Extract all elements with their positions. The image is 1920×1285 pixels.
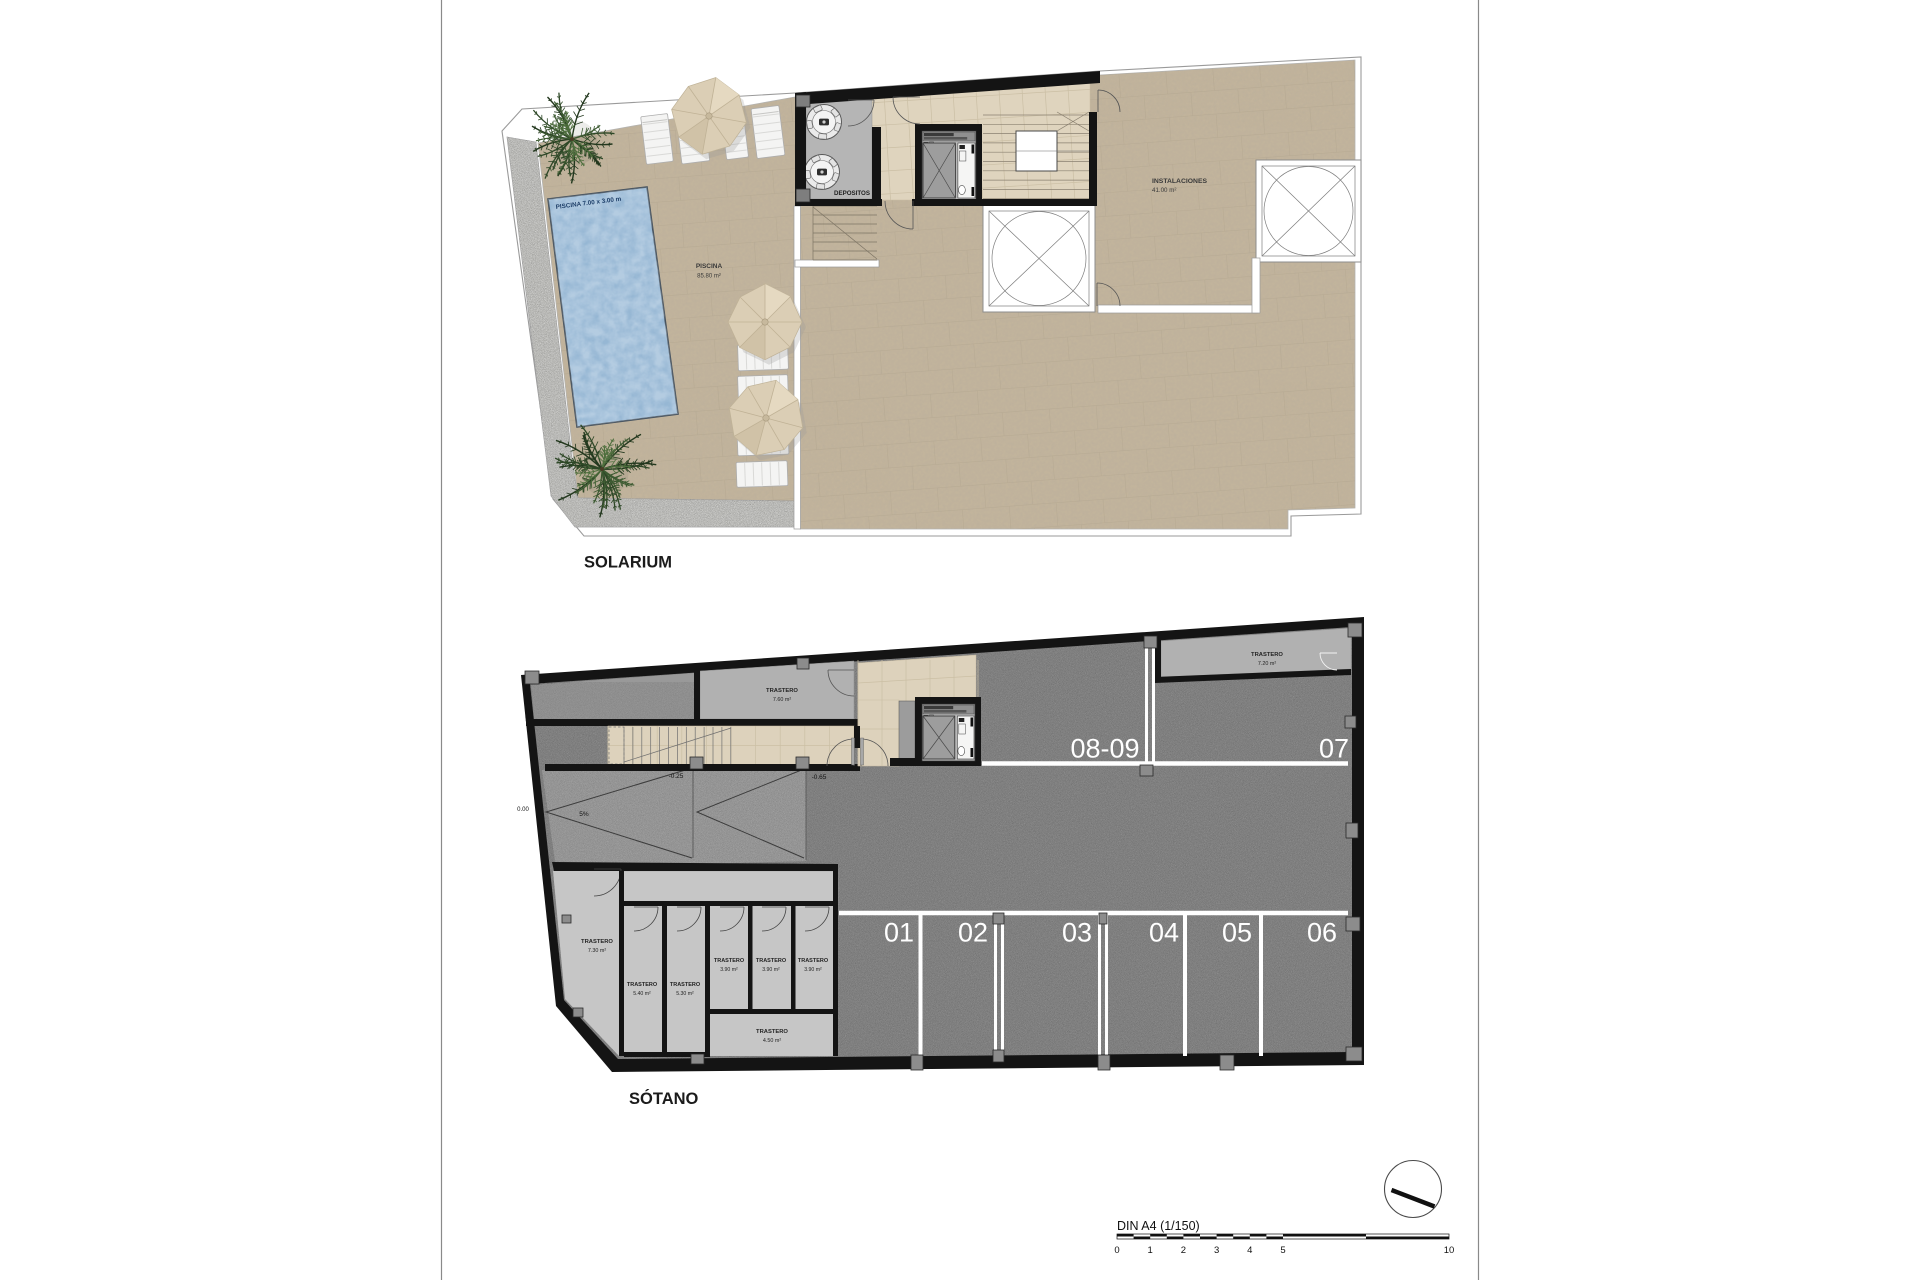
svg-text:TRASTERO: TRASTERO — [756, 1029, 788, 1035]
svg-text:5.40 m²: 5.40 m² — [633, 991, 651, 997]
svg-text:08-09: 08-09 — [1070, 734, 1139, 764]
svg-text:01: 01 — [884, 918, 914, 948]
svg-text:SOLARIUM: SOLARIUM — [584, 554, 672, 572]
svg-text:85.80 m²: 85.80 m² — [697, 274, 721, 280]
svg-text:PISCINA: PISCINA — [696, 263, 723, 270]
svg-text:06: 06 — [1307, 918, 1337, 948]
svg-text:TRASTERO: TRASTERO — [766, 688, 798, 694]
svg-text:7.30 m²: 7.30 m² — [588, 948, 606, 954]
svg-text:DEPOSITOS: DEPOSITOS — [834, 190, 870, 197]
svg-text:10: 10 — [1444, 1245, 1455, 1256]
svg-text:TRASTERO: TRASTERO — [627, 982, 658, 988]
svg-text:7.20 m²: 7.20 m² — [1258, 661, 1276, 667]
svg-text:INSTALACIONES: INSTALACIONES — [1152, 178, 1207, 185]
svg-text:-0.25: -0.25 — [669, 773, 684, 780]
svg-text:-0.65: -0.65 — [812, 774, 827, 781]
svg-text:41.00 m²: 41.00 m² — [1152, 187, 1176, 194]
svg-text:03: 03 — [1062, 918, 1092, 948]
svg-text:TRASTERO: TRASTERO — [798, 958, 829, 964]
svg-text:04: 04 — [1149, 918, 1179, 948]
svg-text:5%: 5% — [579, 811, 589, 818]
svg-text:TRASTERO: TRASTERO — [714, 958, 745, 964]
svg-text:3.90 m²: 3.90 m² — [804, 967, 822, 973]
svg-text:DIN A4 (1/150): DIN A4 (1/150) — [1117, 1219, 1200, 1233]
svg-text:TRASTERO: TRASTERO — [1251, 652, 1283, 658]
svg-text:3.90 m²: 3.90 m² — [762, 967, 780, 973]
svg-text:5: 5 — [1280, 1245, 1285, 1256]
svg-text:0.00: 0.00 — [517, 807, 529, 813]
svg-text:4: 4 — [1247, 1245, 1252, 1256]
svg-text:TRASTERO: TRASTERO — [670, 982, 701, 988]
svg-text:07: 07 — [1319, 734, 1349, 764]
svg-text:02: 02 — [958, 918, 988, 948]
svg-text:7.60 m²: 7.60 m² — [773, 697, 791, 703]
svg-text:3: 3 — [1214, 1245, 1219, 1256]
svg-text:0: 0 — [1114, 1245, 1119, 1256]
svg-text:05: 05 — [1222, 918, 1252, 948]
svg-text:1: 1 — [1148, 1245, 1153, 1256]
svg-text:5.30 m²: 5.30 m² — [676, 991, 694, 997]
svg-text:TRASTERO: TRASTERO — [756, 958, 787, 964]
svg-text:TRASTERO: TRASTERO — [581, 939, 613, 945]
svg-text:3.90 m²: 3.90 m² — [720, 967, 738, 973]
svg-text:SÓTANO: SÓTANO — [629, 1089, 699, 1108]
svg-text:2: 2 — [1181, 1245, 1186, 1256]
svg-text:4.50 m²: 4.50 m² — [763, 1038, 781, 1044]
